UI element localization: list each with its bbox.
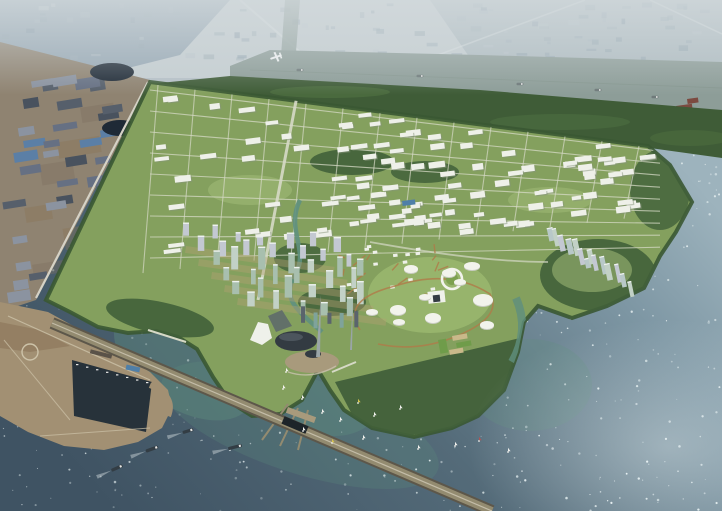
sparkle xyxy=(341,432,342,433)
sparkle xyxy=(50,498,51,499)
sparkle xyxy=(128,461,130,463)
sparkle xyxy=(21,504,22,505)
tower-roof xyxy=(294,267,299,268)
sparkle xyxy=(708,182,710,184)
village-path xyxy=(434,244,435,253)
village-house xyxy=(405,253,410,257)
sparkle xyxy=(243,461,245,463)
sparkle xyxy=(36,450,37,451)
tower-roof xyxy=(219,241,226,242)
residential-tower xyxy=(337,256,342,276)
sparkle xyxy=(710,173,712,175)
tower-roof xyxy=(321,302,328,303)
residential-tower xyxy=(287,233,294,249)
harbor-tower xyxy=(340,313,344,328)
tower-roof xyxy=(257,236,263,237)
sparkle xyxy=(114,481,117,484)
sparkle xyxy=(167,452,169,454)
sparkle xyxy=(213,435,215,437)
tower-roof xyxy=(340,286,346,287)
park-dome xyxy=(442,269,456,277)
sparkle xyxy=(155,487,156,488)
tower-roof xyxy=(288,253,294,254)
residential-tower xyxy=(243,239,249,255)
residential-tower xyxy=(288,253,294,274)
sparkle xyxy=(35,504,37,506)
sparkle xyxy=(235,477,238,480)
sparkle xyxy=(285,489,287,491)
residential-tower xyxy=(300,245,306,259)
sparkle xyxy=(356,509,357,510)
sparkle xyxy=(26,486,27,487)
aerial-rendering-stage: Aerial masterplan rendering of a coastal… xyxy=(0,0,722,511)
sparkle xyxy=(187,359,189,361)
sparkle xyxy=(61,454,62,455)
moored-boat xyxy=(86,367,88,368)
sparkle xyxy=(700,181,701,182)
tower-roof xyxy=(198,236,205,237)
tower-roof xyxy=(251,269,256,270)
sparkle xyxy=(708,213,710,215)
tower-roof xyxy=(347,297,353,298)
sparkle xyxy=(290,483,292,485)
moored-boat xyxy=(106,372,108,373)
tower-roof xyxy=(310,232,316,233)
sparkle xyxy=(696,208,697,209)
residential-tower xyxy=(340,286,346,302)
sailboat-hull xyxy=(331,442,333,444)
sparkle xyxy=(698,181,699,182)
moored-boat xyxy=(76,364,78,365)
sparkle xyxy=(210,458,212,460)
tower-roof xyxy=(320,249,325,250)
village-house xyxy=(347,283,352,287)
sparkle xyxy=(121,494,123,496)
tower-roof xyxy=(308,259,314,260)
village-house xyxy=(393,254,398,258)
sparkle xyxy=(113,506,115,508)
tower-roof xyxy=(223,267,229,268)
sparkle xyxy=(344,483,347,486)
tower-roof xyxy=(351,267,356,268)
residential-tower xyxy=(231,246,238,269)
tower-roof xyxy=(258,247,265,248)
park-dome xyxy=(404,265,418,273)
sparkle xyxy=(3,428,4,429)
sparkle xyxy=(201,440,202,441)
sparkle xyxy=(239,461,241,463)
sparkle xyxy=(176,387,178,389)
moored-boat xyxy=(126,377,128,378)
residential-tower xyxy=(258,247,265,270)
village-house xyxy=(373,250,378,254)
atmospheric-haze xyxy=(0,0,722,95)
residential-tower xyxy=(183,223,189,236)
industrial-building xyxy=(584,173,595,181)
sailboat-hull xyxy=(301,398,303,400)
sparkle xyxy=(706,201,708,203)
sparkle xyxy=(139,485,141,487)
sparkle xyxy=(692,225,694,227)
sparkle xyxy=(85,452,87,454)
industrial-building xyxy=(445,209,455,216)
residential-tower xyxy=(213,225,218,239)
industrial-building xyxy=(472,163,484,171)
sparkle xyxy=(250,443,252,445)
tower-roof xyxy=(273,264,278,265)
sparkle xyxy=(714,195,716,197)
tower-roof xyxy=(326,270,333,271)
sparkle xyxy=(68,469,70,471)
sparkle xyxy=(347,493,348,494)
residential-tower xyxy=(198,236,205,251)
sparkle xyxy=(69,482,71,484)
sparkle xyxy=(4,435,6,437)
residential-tower xyxy=(213,250,219,265)
residential-tower xyxy=(334,237,341,252)
sparkle xyxy=(19,474,21,476)
sparkle xyxy=(715,173,718,176)
sparkle xyxy=(683,246,685,248)
sparkle xyxy=(347,463,348,464)
sparkle xyxy=(686,245,688,247)
residential-tower xyxy=(257,236,263,245)
tower-roof xyxy=(300,245,306,246)
sparkle xyxy=(12,490,13,491)
residential-tower xyxy=(321,302,328,316)
sparkle xyxy=(145,343,147,345)
sparkle xyxy=(246,466,248,468)
residential-tower xyxy=(273,290,279,309)
sun-glint xyxy=(360,280,722,511)
tower-roof xyxy=(273,290,279,291)
moored-boat xyxy=(96,369,98,370)
tower-roof xyxy=(309,284,316,285)
sparkle xyxy=(335,459,337,461)
residential-tower xyxy=(357,258,363,275)
harbor-tower xyxy=(314,312,318,328)
village-house xyxy=(415,252,420,256)
residential-tower xyxy=(232,281,239,294)
sparkle xyxy=(654,275,656,277)
tower-roof xyxy=(287,233,294,234)
residential-tower xyxy=(269,242,275,257)
moored-boat xyxy=(136,379,138,380)
moored-boat xyxy=(116,374,118,375)
sparkle xyxy=(37,468,38,469)
sparkle xyxy=(183,422,184,423)
sparkle xyxy=(96,491,97,492)
sparkle xyxy=(716,189,717,190)
sparkle xyxy=(89,476,90,477)
sparkle xyxy=(147,492,149,494)
sparkle xyxy=(296,442,297,443)
sparkle xyxy=(187,409,188,410)
tower-roof xyxy=(334,237,341,238)
sparkle xyxy=(715,166,717,168)
residential-tower xyxy=(219,241,226,257)
sailboat-hull xyxy=(282,388,284,390)
tower-roof xyxy=(183,223,189,224)
sparkle xyxy=(178,414,180,416)
sparkle xyxy=(261,430,263,432)
sparkle xyxy=(349,474,351,476)
sparkle xyxy=(705,164,706,165)
sparkle xyxy=(200,493,201,494)
residential-tower xyxy=(236,232,241,242)
residential-tower xyxy=(273,264,278,284)
industrial-building xyxy=(413,219,424,226)
tower-roof xyxy=(337,256,342,257)
tower-roof xyxy=(285,275,292,276)
moored-boat xyxy=(146,382,148,383)
sparkle xyxy=(172,424,174,426)
sparkle xyxy=(260,497,263,500)
tower-roof xyxy=(232,281,239,282)
residential-tower xyxy=(294,267,299,283)
sailboat-hull xyxy=(302,430,304,432)
sailboat-hull xyxy=(339,420,341,422)
egg-dome-highlight xyxy=(279,333,303,341)
residential-tower xyxy=(326,270,333,288)
sailboat-hull xyxy=(321,412,323,414)
sparkle xyxy=(114,490,115,491)
harbor-tower xyxy=(354,311,358,327)
masterplan-aerial-rendering: Aerial masterplan rendering of a coastal… xyxy=(0,0,722,511)
tower-roof xyxy=(243,239,249,240)
village-house xyxy=(403,260,408,264)
barge-cabin xyxy=(656,96,658,98)
residential-tower xyxy=(320,249,325,261)
residential-tower xyxy=(310,232,316,247)
residential-tower xyxy=(285,275,292,297)
sparkle xyxy=(200,440,201,441)
residential-tower xyxy=(309,284,316,297)
sparkle xyxy=(194,417,195,418)
residential-tower xyxy=(247,291,254,306)
tower-roof xyxy=(231,246,238,247)
village-house xyxy=(364,248,369,252)
sparkle xyxy=(279,432,281,434)
tower-roof xyxy=(213,250,219,251)
sailboat-hull xyxy=(357,402,359,404)
tower-roof xyxy=(347,254,352,255)
tower-roof xyxy=(357,258,363,259)
sparkle xyxy=(131,337,133,339)
residential-tower xyxy=(351,267,356,288)
sparkle xyxy=(151,497,152,498)
sparkle xyxy=(718,193,720,195)
tower-roof xyxy=(301,300,306,301)
residential-tower xyxy=(223,267,229,280)
tower-roof xyxy=(213,225,218,226)
tower-roof xyxy=(269,242,275,243)
sailboat-hull xyxy=(285,371,287,373)
tower-roof xyxy=(258,277,264,278)
sparkle xyxy=(681,162,683,164)
sparkle xyxy=(236,469,238,471)
park-dome xyxy=(464,262,480,270)
sparkle xyxy=(693,155,695,157)
harbor-tower xyxy=(327,313,331,324)
residential-tower xyxy=(347,297,353,316)
tower-roof xyxy=(247,291,254,292)
village-house xyxy=(373,262,378,266)
sparkle xyxy=(238,434,239,435)
harbor-tower xyxy=(301,306,305,323)
village-house xyxy=(416,247,421,251)
tower-roof xyxy=(236,232,241,233)
residential-tower xyxy=(251,269,256,285)
residential-tower xyxy=(308,259,314,272)
residential-tower xyxy=(258,277,264,297)
sparkle xyxy=(280,470,282,472)
sparkle xyxy=(26,305,27,306)
residential-tower xyxy=(347,254,352,267)
